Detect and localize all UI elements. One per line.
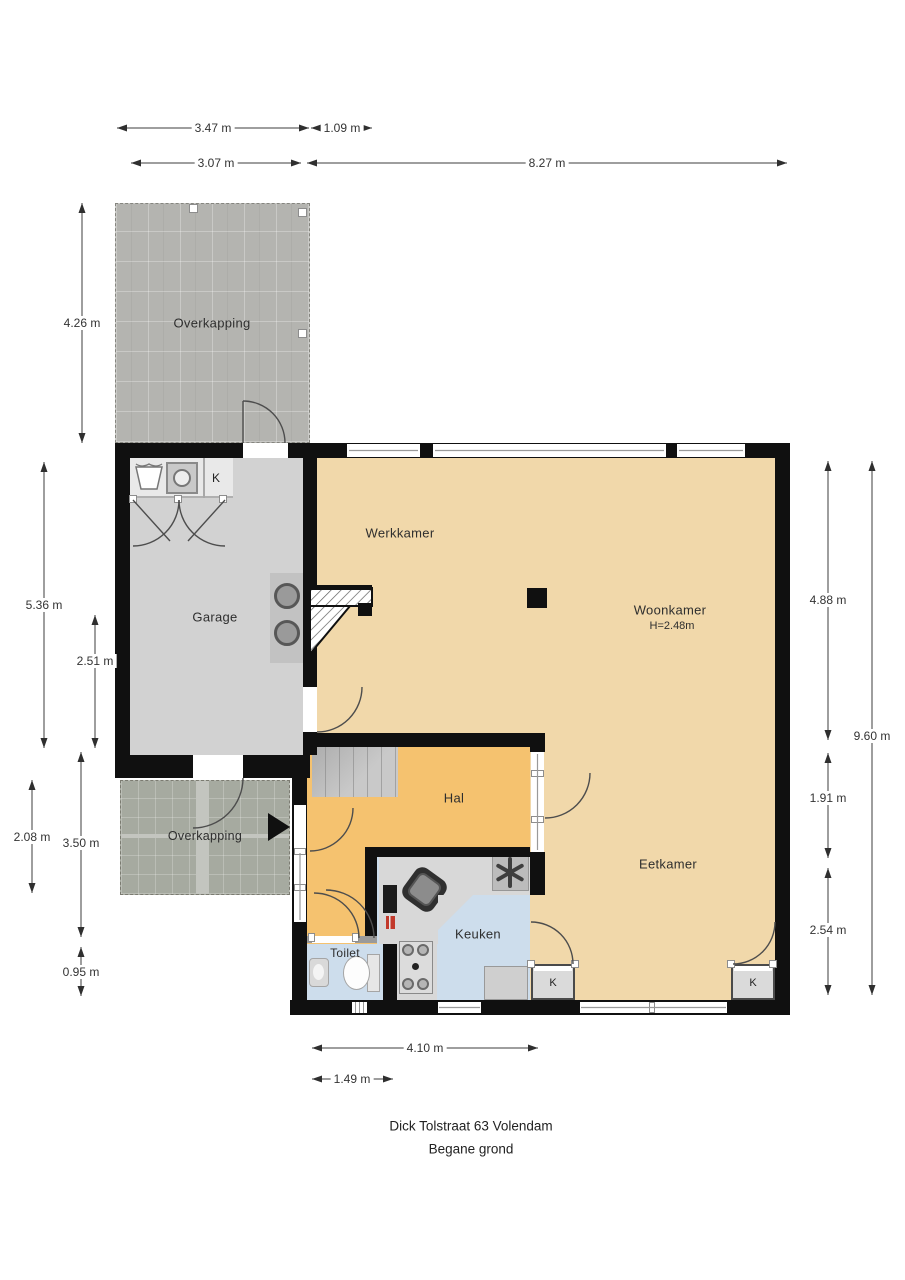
- plan-address-title: Dick Tolstraat 63 Volendam: [389, 1119, 552, 1134]
- dim-label: 1.09 m: [321, 121, 364, 135]
- dim-label: 9.60 m: [851, 729, 894, 743]
- entrance-arrow-icon: [268, 813, 290, 841]
- room-label-woonkamer-height: H=2.48m: [650, 620, 695, 632]
- dim-label: 4.88 m: [807, 593, 850, 607]
- room-label-overkapping-top: Overkapping: [173, 316, 250, 331]
- dim-label: 2.54 m: [807, 923, 850, 937]
- dim-label: 8.27 m: [526, 156, 569, 170]
- room-label-garage: Garage: [192, 610, 237, 625]
- kitchen-counter-diagonal: [438, 895, 473, 930]
- room-label-woonkamer: Woonkamer: [634, 603, 707, 618]
- dim-label: 3.47 m: [192, 121, 235, 135]
- closet-label-garage: K: [212, 471, 220, 485]
- closet-label-keuken: K: [549, 977, 556, 989]
- room-label-overkapping-bottom: Overkapping: [168, 829, 242, 843]
- dim-label: 4.26 m: [61, 316, 104, 330]
- dim-label: 5.36 m: [23, 598, 66, 612]
- room-label-toilet: Toilet: [330, 946, 360, 960]
- dim-label: 1.91 m: [807, 791, 850, 805]
- plan-floor-title: Begane grond: [429, 1142, 514, 1157]
- dim-label: 2.51 m: [74, 654, 117, 668]
- floorplan-canvas: 3.47 m 1.09 m 3.07 m 8.27 m 4.26 m 5.36 …: [0, 0, 905, 1280]
- dim-label: 1.49 m: [331, 1072, 374, 1086]
- room-label-hal: Hal: [444, 791, 464, 806]
- dim-label: 3.07 m: [195, 156, 238, 170]
- stair-void-hatch: [310, 585, 372, 654]
- dim-label: 4.10 m: [404, 1041, 447, 1055]
- plan-linework: [0, 0, 905, 1280]
- laundry-sink-icon: [136, 464, 162, 489]
- dim-label: 2.08 m: [11, 830, 54, 844]
- closet-label-eetkamer: K: [749, 977, 756, 989]
- ventilation-fan-icon: [498, 859, 521, 886]
- room-label-keuken: Keuken: [455, 927, 501, 942]
- dim-label: 0.95 m: [60, 965, 103, 979]
- dim-label: 3.50 m: [60, 836, 103, 850]
- room-label-werkkamer: Werkkamer: [366, 526, 435, 541]
- door-arcs: [133, 401, 775, 964]
- room-label-eetkamer: Eetkamer: [639, 857, 697, 872]
- dimension-lines: [32, 128, 872, 1079]
